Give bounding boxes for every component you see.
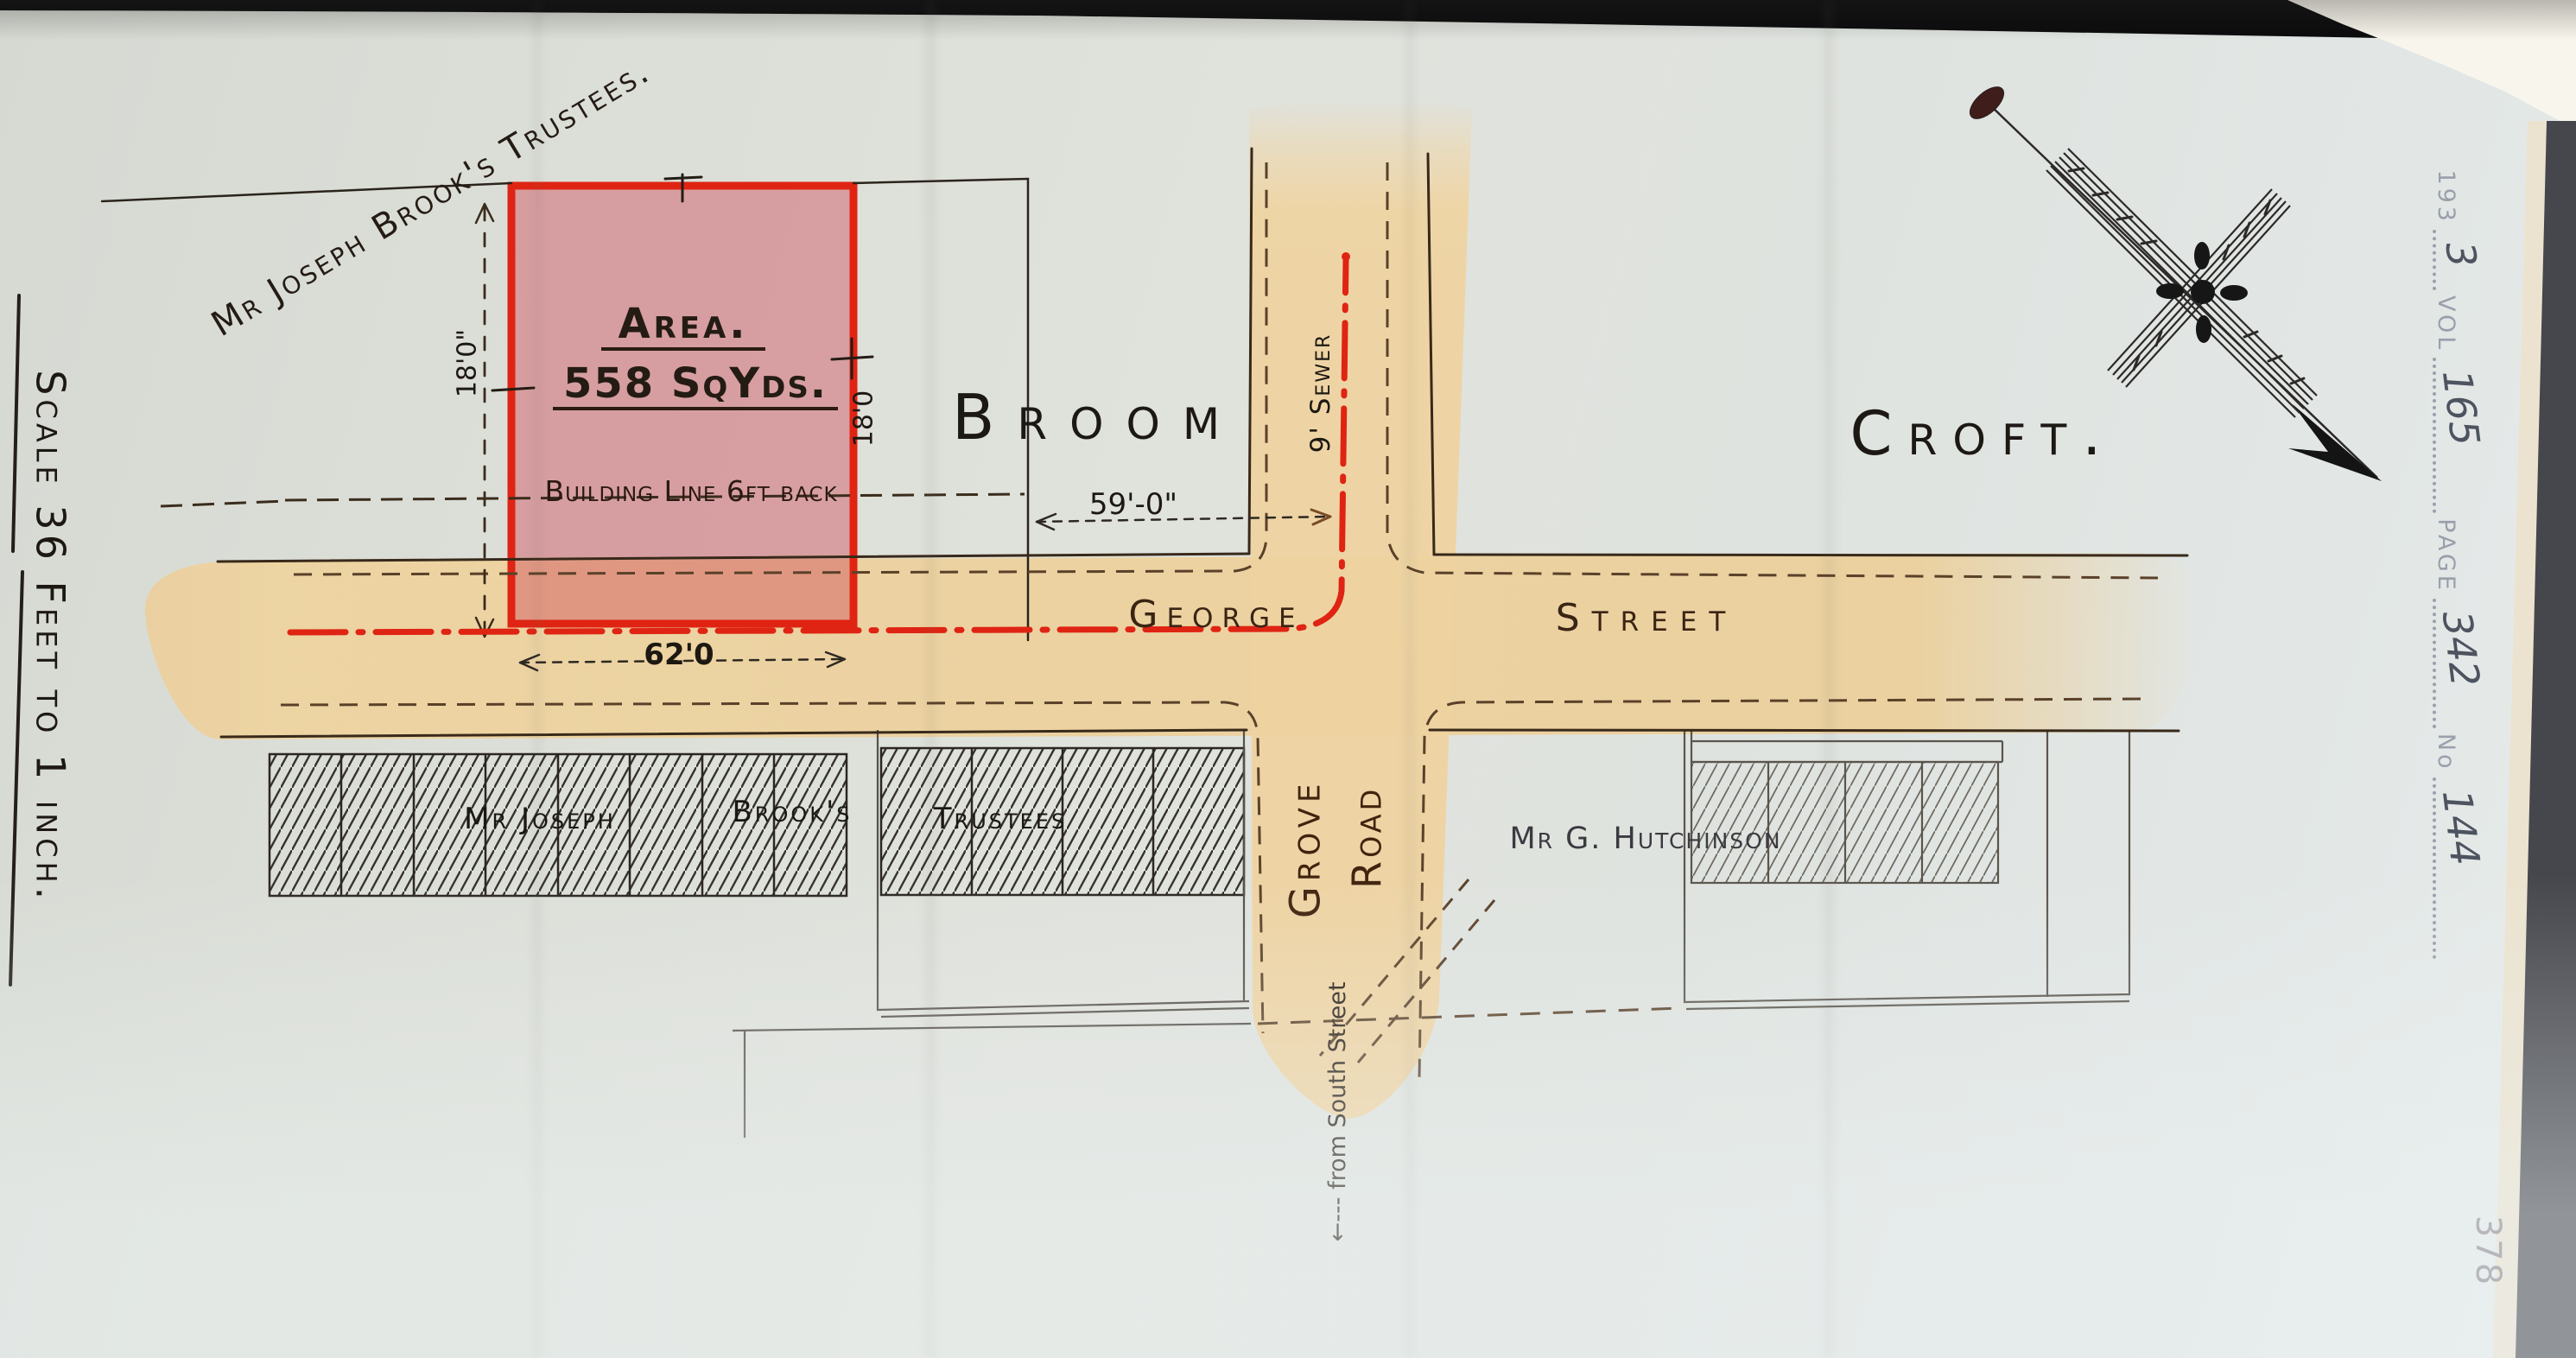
page-number: 378 <box>2469 1199 2507 1303</box>
ledger-stamp: 193 3 VOL 165 PAGE 342 No 144 <box>2433 60 2484 1063</box>
plot-area-title: Area. <box>601 301 765 351</box>
terrace-owner-label-3: Trustees <box>888 803 1113 835</box>
stamp-vol-value: 165 <box>2433 367 2489 448</box>
stamp-series-value: 3 <box>2436 239 2485 270</box>
dim-62ft-label: 62'0 <box>610 639 748 671</box>
grove-road-label-2: Road <box>1346 742 1390 932</box>
stamp-vol-label: VOL <box>2433 290 2459 358</box>
field-label-croft: Croft. <box>1802 401 2165 467</box>
dim-18ft-left-label: 18'0" <box>454 303 482 424</box>
stamp-no-value: 144 <box>2433 787 2489 868</box>
george-street-label-2: Street <box>1491 598 1802 639</box>
stamp-series: 193 <box>2433 164 2459 230</box>
from-south-street-label: ←--- from South Street <box>1325 965 1351 1259</box>
plot-area-value: 558 SqYds. <box>553 361 838 410</box>
grove-road-label-1: Grove <box>1284 736 1329 961</box>
scale-label: Scale 36 Feet to 1 inch. <box>29 257 73 1017</box>
building-line-label: Building Line 6ft back <box>501 476 881 507</box>
plan-labels: Scale 36 Feet to 1 inch. Mr Joseph Brook… <box>0 0 2576 1358</box>
terrace-owner-label-1: Mr Joseph <box>428 803 652 835</box>
dim-18ft-right-label: 18'0 <box>850 359 879 479</box>
stamp-page-value: 342 <box>2433 608 2489 689</box>
sewer-label: 9' Sewer <box>1306 298 1336 488</box>
field-label-broom: Broom <box>890 384 1304 452</box>
george-street-label-1: George <box>1074 594 1359 636</box>
scanned-plan-page: Scale 36 Feet to 1 inch. Mr Joseph Brook… <box>0 0 2576 1358</box>
stamp-no-label: No <box>2433 728 2459 777</box>
stamp-page-label: PAGE <box>2433 513 2459 599</box>
hutchinson-owner-label: Mr G. Hutchinson <box>1456 822 1836 856</box>
terrace-owner-label-2: Brook's <box>697 796 887 828</box>
dim-59ft-label: 59'-0" <box>1038 489 1228 521</box>
